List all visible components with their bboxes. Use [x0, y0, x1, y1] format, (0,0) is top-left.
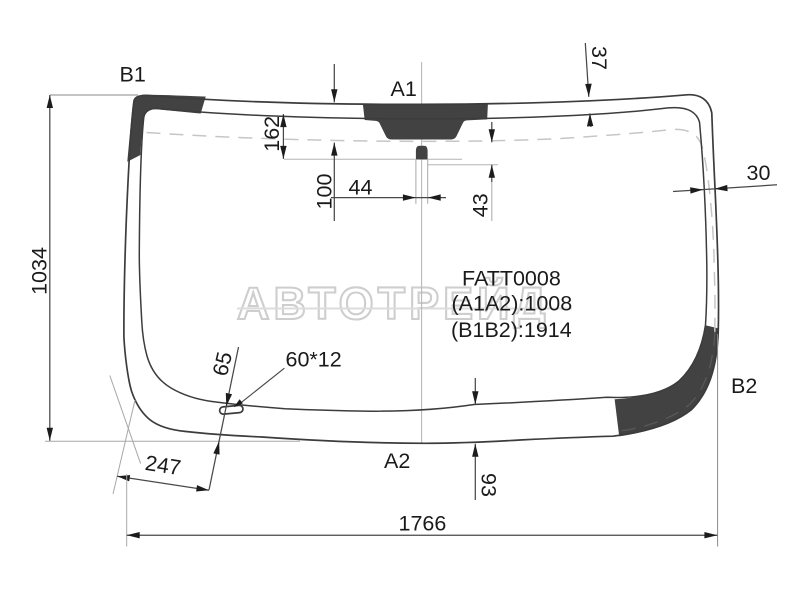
svg-text:1766: 1766 — [399, 512, 447, 536]
svg-text:30: 30 — [747, 161, 771, 185]
svg-text:93: 93 — [477, 473, 501, 497]
svg-text:37: 37 — [587, 46, 611, 70]
svg-text:100: 100 — [313, 174, 337, 210]
svg-text:43: 43 — [468, 193, 492, 217]
svg-text:A1: A1 — [391, 77, 417, 101]
svg-text:60*12: 60*12 — [286, 348, 342, 372]
svg-text:(B1B2):1914: (B1B2):1914 — [451, 318, 572, 342]
svg-text:B1: B1 — [120, 63, 146, 87]
svg-text:B2: B2 — [731, 374, 757, 398]
svg-text:(A1A2):1008: (A1A2):1008 — [452, 292, 573, 316]
svg-text:1034: 1034 — [28, 247, 52, 295]
svg-text:162: 162 — [260, 116, 284, 152]
svg-text:44: 44 — [349, 176, 373, 200]
svg-text:FATT0008: FATT0008 — [462, 267, 561, 291]
svg-text:A2: A2 — [384, 449, 410, 473]
